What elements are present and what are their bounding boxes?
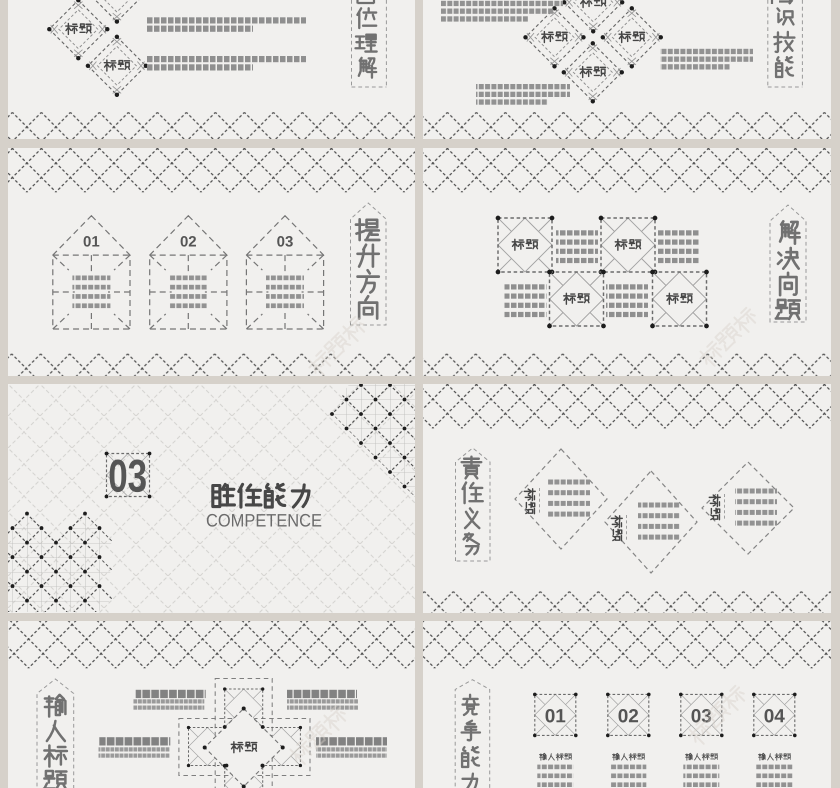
svg-text:03: 03 — [277, 233, 294, 250]
svg-text:04: 04 — [764, 706, 786, 727]
svg-text:02: 02 — [618, 706, 639, 727]
svg-text:02: 02 — [180, 233, 197, 250]
svg-text:01: 01 — [83, 233, 100, 250]
svg-text:03: 03 — [108, 450, 147, 502]
svg-text:01: 01 — [545, 706, 567, 727]
svg-text:COMPETENCE: COMPETENCE — [206, 510, 322, 530]
